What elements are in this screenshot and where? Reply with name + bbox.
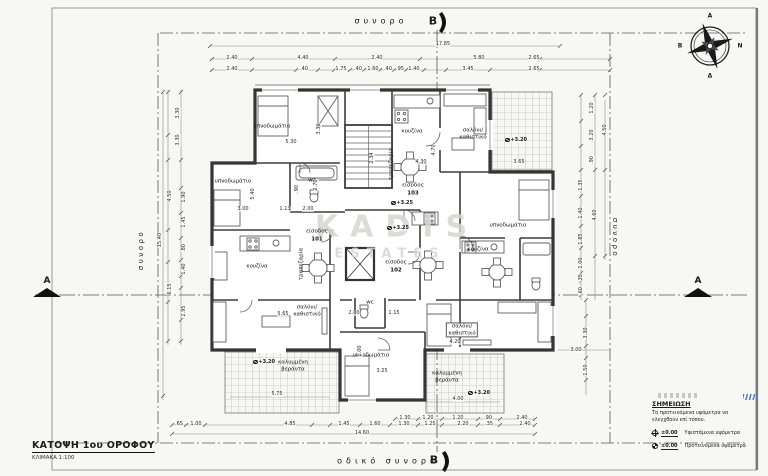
compass-letter-top: Α	[708, 13, 713, 20]
legend-row-proposed: ±0.00 Προτεινόμενα υψόμετρα	[652, 443, 764, 450]
section-a-right-letter: A	[695, 276, 702, 286]
boundary-label-top: συνορο	[354, 17, 407, 26]
boundary-label-bottom: οδικό συνορο	[337, 457, 439, 466]
title-block: ΚΑΤΟΨΗ 1ου ΟΡΟΦΟΥ ΚΛΙΜΑΚΑ 1:100	[32, 440, 155, 461]
legend-heading: ΣΗΜΕΙΩΣΗ	[652, 400, 764, 408]
proposed-level-label: Προτεινόμενα υψόμετρα	[685, 443, 746, 449]
legend-note: Τα προτεινόμενα υψόμετρα να ελεγχθούν επ…	[652, 410, 764, 424]
compass-letter-bottom: Δ	[708, 73, 713, 80]
drawing-scale: ΚΛΙΜΑΚΑ 1:100	[32, 455, 155, 461]
section-b-bottom-letter: B	[430, 454, 438, 467]
boundary-label-right: συνορο	[611, 218, 619, 258]
existing-level-symbol	[652, 430, 658, 436]
existing-level-value: ±0.00	[661, 430, 678, 437]
legend-stamp-mark	[743, 394, 758, 400]
proposed-level-symbol	[652, 443, 658, 449]
compass-letter-left: Β	[678, 43, 683, 50]
legend-scribble	[658, 393, 700, 398]
boundary-label-left: συνορο	[137, 230, 145, 270]
proposed-level-value: ±0.00	[661, 443, 678, 450]
section-a-left-letter: A	[44, 276, 51, 286]
section-b-top-letter: B	[429, 15, 437, 28]
notes-legend: ΣΗΜΕΙΩΣΗ Τα προτεινόμενα υψόμετρα να ελε…	[652, 393, 764, 450]
legend-row-existing: ±0.00 Υφιστάμενα υψόμετρα	[652, 430, 764, 437]
existing-level-label: Υφιστάμενα υψόμετρα	[685, 430, 741, 436]
compass-letter-right: Ν	[737, 43, 742, 50]
floor-plan-sheet: KADIS ESTATES υπνοδωμάτιουπνοδωμάτιουπνο…	[0, 0, 768, 476]
drawing-title: ΚΑΤΟΨΗ 1ου ΟΡΟΦΟΥ	[32, 440, 155, 453]
